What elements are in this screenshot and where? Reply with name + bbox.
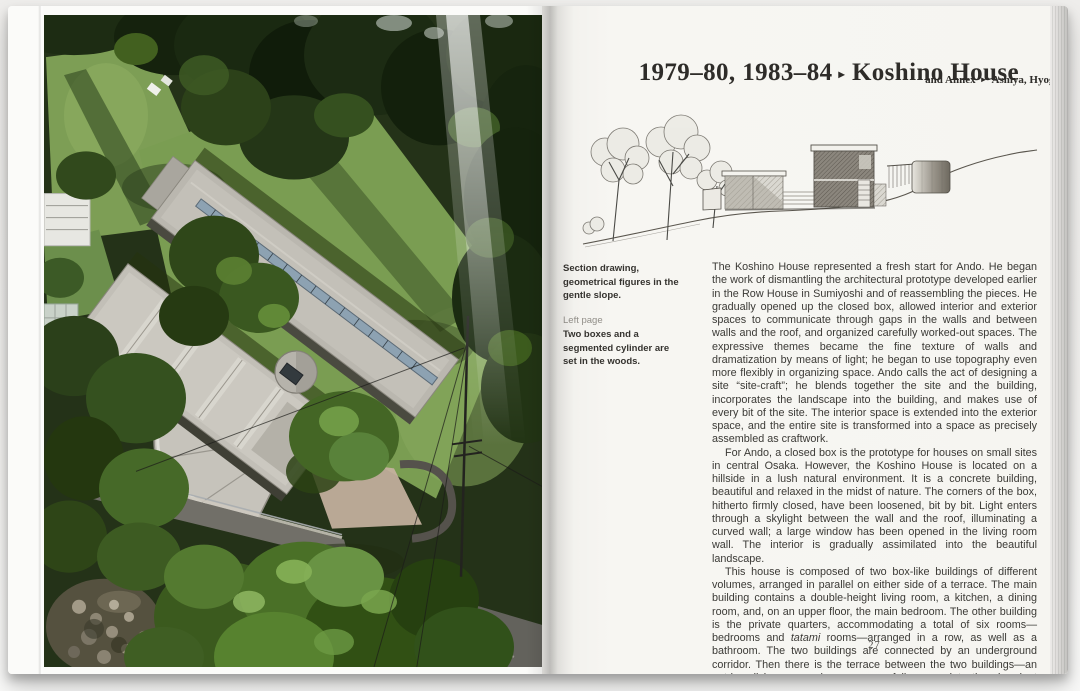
body-text: The Koshino House represented a fresh st… <box>712 261 1037 674</box>
body-paragraph: This house is composed of two box-like b… <box>712 566 1037 674</box>
body-paragraph: For Ando, a closed box is the prototype … <box>712 447 1037 566</box>
aerial-photo-svg <box>44 15 542 667</box>
page-number: 27 <box>712 640 1037 651</box>
page-edge-stack <box>1050 6 1068 674</box>
arrow-right-small-icon: ► <box>980 75 988 84</box>
section-drawing <box>575 100 1040 252</box>
page-crease <box>38 6 43 674</box>
arrow-right-icon: ▸ <box>839 67 845 81</box>
subtitle: and Annex►Ashiya, Hyogo <box>925 74 1060 86</box>
caption-drawing: Section drawing, geometrical figures in … <box>563 262 685 303</box>
subtitle-prefix: and Annex <box>925 74 975 86</box>
body-paragraph: The Koshino House represented a fresh st… <box>712 261 1037 447</box>
right-page: 1979–80, 1983–84▸Koshino House and Annex… <box>542 6 1068 674</box>
title-years: 1979–80, 1983–84 <box>639 59 833 86</box>
caption-column: Section drawing, geometrical figures in … <box>563 262 685 369</box>
caption-left-page-label: Left page <box>563 314 685 328</box>
section-drawing-svg <box>575 100 1040 252</box>
left-page <box>8 6 542 674</box>
book-spread: 1979–80, 1983–84▸Koshino House and Annex… <box>8 6 1068 674</box>
caption-photo: Two boxes and a segmented cylinder are s… <box>563 328 685 369</box>
aerial-photo <box>44 15 542 667</box>
